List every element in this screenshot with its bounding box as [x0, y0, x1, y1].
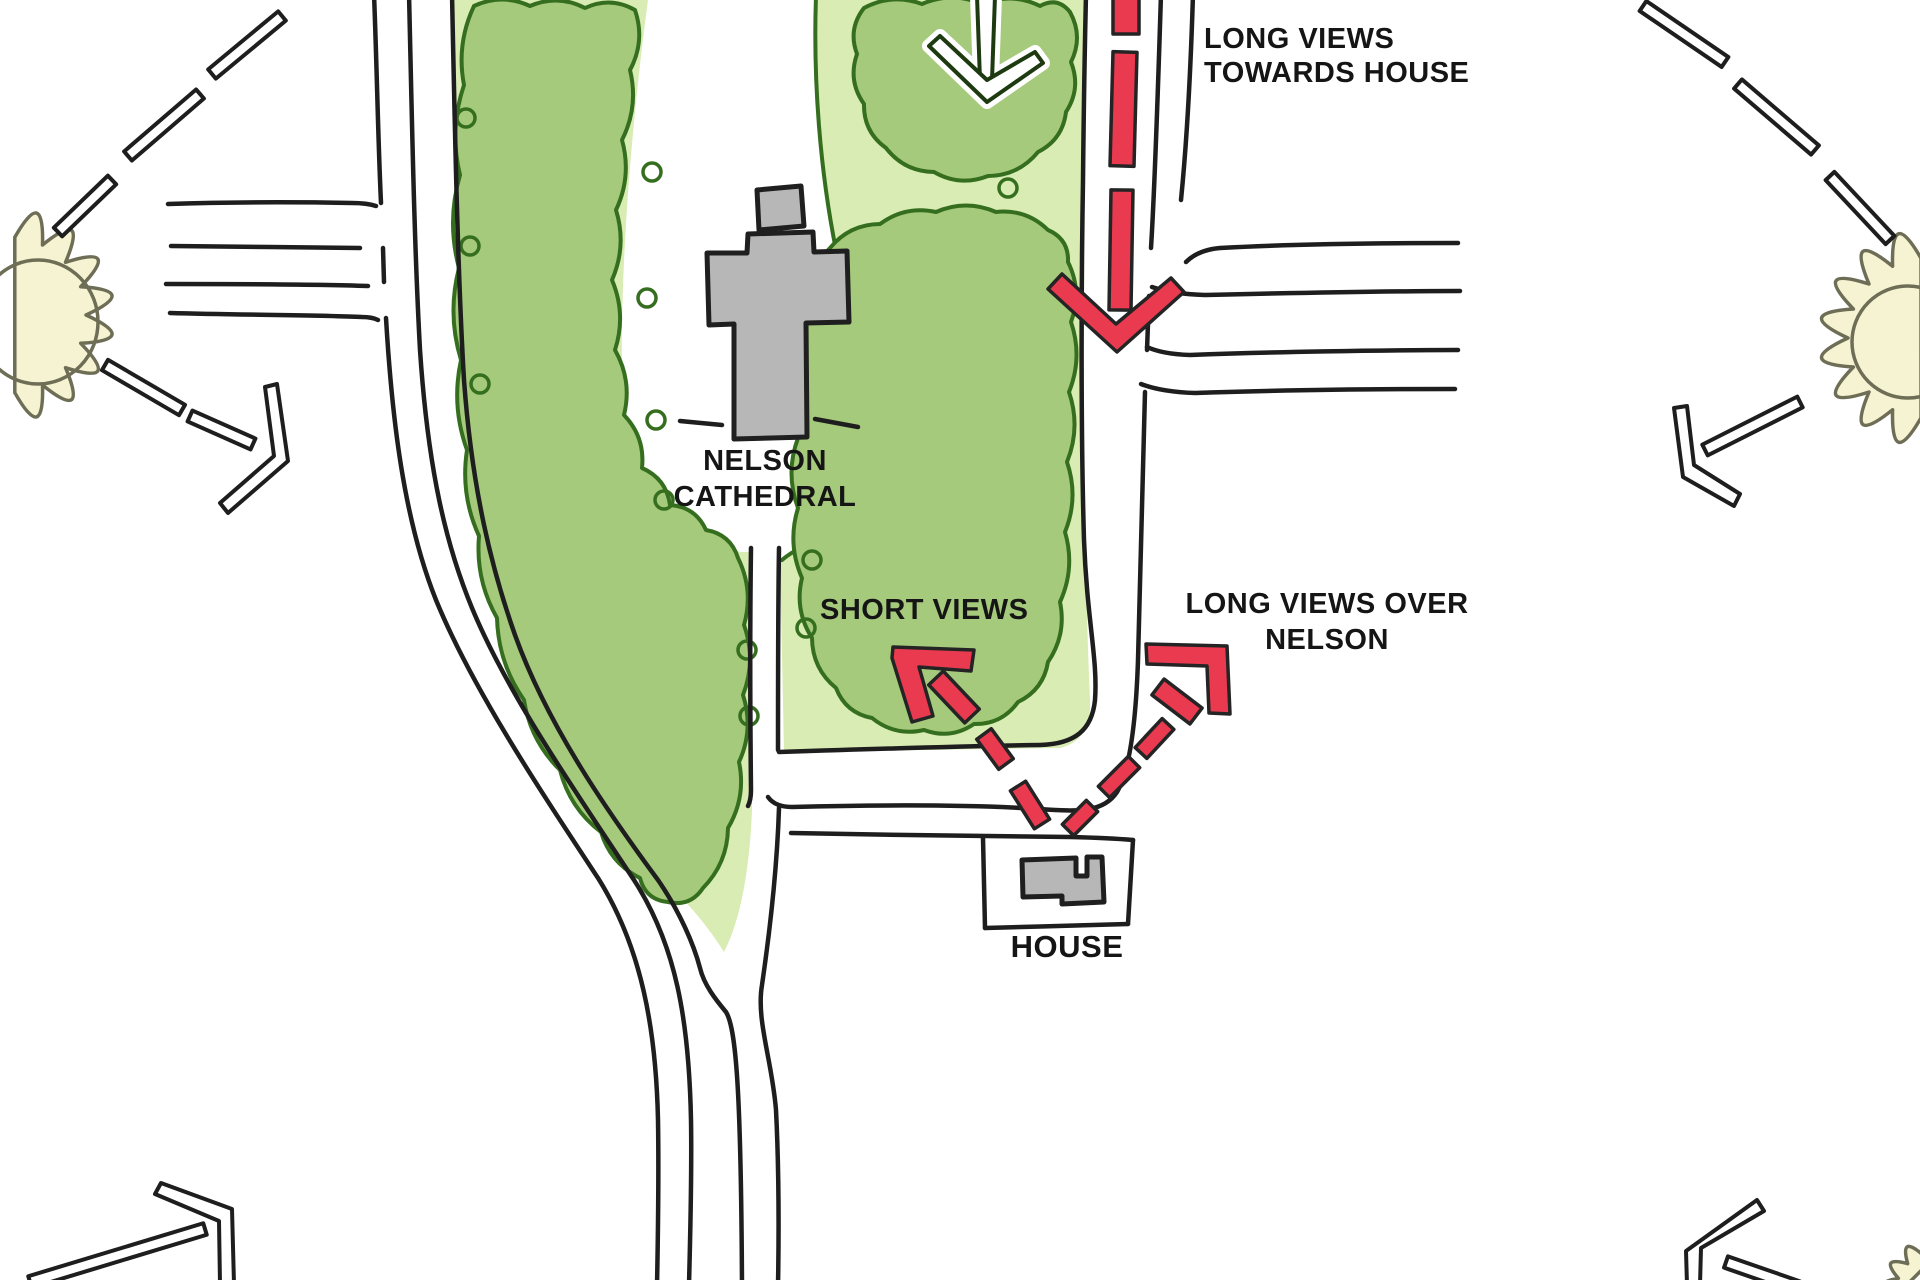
street-left-2-north: [166, 284, 368, 286]
house-plot: [983, 838, 1133, 928]
cathedral-path-east: [778, 548, 779, 750]
house-block-line: [791, 833, 1133, 840]
sun-ray-dash: [1734, 79, 1819, 154]
road-south-east-edge: [761, 808, 779, 1280]
forecourt-dash-left: [680, 421, 722, 425]
sun-ray-dash: [124, 89, 204, 160]
sun-ray-dash: [208, 11, 286, 78]
canopy-curl: [643, 163, 661, 181]
sun-symbol-right: [1821, 234, 1920, 443]
canopy-curl: [638, 289, 656, 307]
street-right-2-south: [1141, 384, 1455, 393]
canopy-curl: [647, 411, 665, 429]
red-view-dash: [1010, 781, 1049, 829]
street-right-2-north: [1147, 347, 1458, 355]
red-view-dash: [1135, 719, 1174, 759]
sun-ray-dash: [102, 360, 185, 415]
street-right-1-north: [1186, 243, 1458, 262]
red-view-dash: [1109, 190, 1133, 310]
sun-ray-dash: [54, 176, 116, 237]
street-left-1-north: [168, 202, 376, 206]
label-short-views: SHORT VIEWS: [820, 593, 1029, 627]
road-east-edge-upper: [1151, 0, 1161, 248]
road-west-edge-stub: [383, 248, 384, 282]
label-long-views-towards-house: LONG VIEWS TOWARDS HOUSE: [1204, 22, 1469, 90]
plot-left-edge: [983, 838, 985, 928]
sun-ray-dash: [1640, 1, 1729, 67]
road-west-edge-upper: [374, 0, 381, 203]
house-building: [1022, 857, 1104, 904]
label-house: HOUSE: [997, 930, 1137, 964]
label-long-views-over-nelson: LONG VIEWS OVER NELSON: [1161, 586, 1493, 658]
entry-arrow-shaft: [977, 0, 995, 80]
red-view-dash: [1152, 679, 1202, 724]
red-view-dash: [1113, 0, 1139, 34]
plot-right-edge: [1128, 840, 1133, 924]
street-left-2-south: [170, 313, 378, 320]
sketch-map-canvas: [0, 0, 1920, 1280]
plot-bottom-edge: [985, 924, 1128, 928]
sun-ray-dash: [28, 1223, 206, 1280]
red-view-dash: [1110, 52, 1137, 167]
street-right-1-south: [1152, 287, 1460, 295]
sun-symbol-bottom-right: [1883, 1239, 1920, 1280]
site-plan-sketch: LONG VIEWS TOWARDS HOUSE NELSON CATHEDRA…: [0, 0, 1920, 1280]
sidewalk-line: [1181, 0, 1193, 200]
label-nelson-cathedral: NELSON CATHEDRAL: [655, 443, 875, 515]
sun-ray-dash: [1702, 397, 1802, 456]
cathedral-tower: [757, 186, 804, 230]
sun-ray-dash: [1724, 1256, 1800, 1280]
sun-ray-dash: [1826, 172, 1895, 244]
street-left-1-south: [171, 246, 360, 248]
sun-ray-dash: [188, 411, 256, 450]
red-view-dash: [1062, 800, 1097, 835]
arrowhead-left-down: [220, 384, 288, 513]
